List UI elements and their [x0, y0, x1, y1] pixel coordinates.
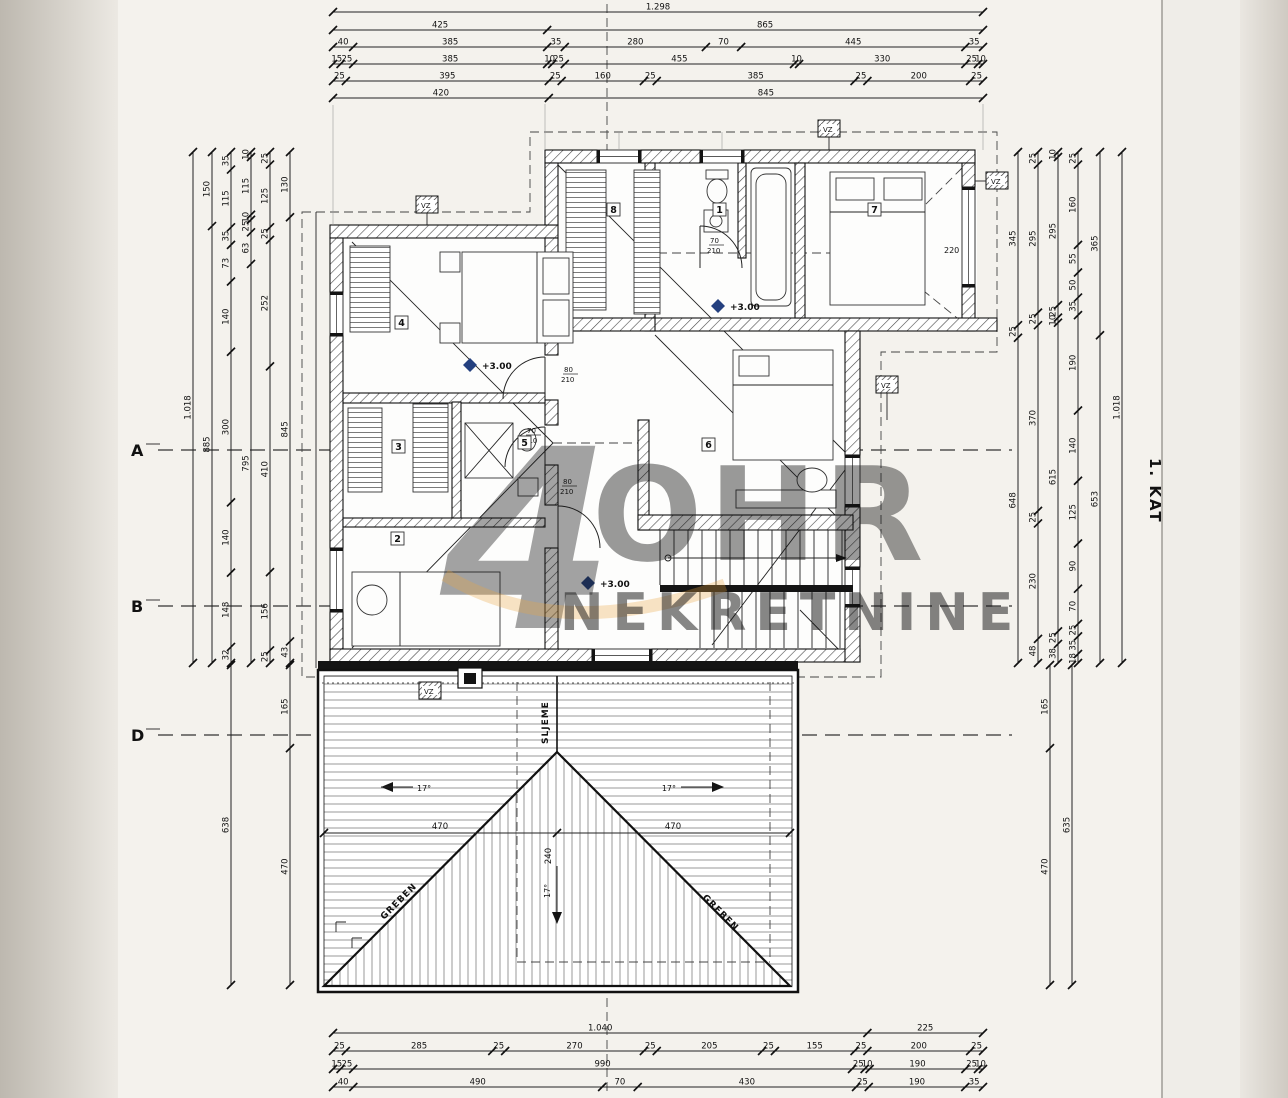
dim-label: 25: [242, 221, 252, 232]
roof-plan: VZ SLJEME 17° 17° 17° 470 470 240: [318, 661, 798, 992]
dim-label: 25: [1029, 313, 1039, 324]
svg-text:VZ: VZ: [823, 126, 833, 134]
room-number-3: 3: [392, 440, 405, 453]
dim-label: 90: [1069, 561, 1079, 572]
dim-label: 385: [442, 55, 458, 65]
svg-text:80: 80: [564, 366, 573, 374]
dim-label: 63: [242, 243, 252, 254]
dim-label: 410: [261, 461, 271, 477]
svg-text:70: 70: [710, 237, 719, 245]
dim-label: 845: [758, 89, 774, 99]
svg-text:470: 470: [432, 822, 448, 832]
dim-label: 370: [1029, 410, 1039, 426]
dim-label: 35: [222, 155, 232, 166]
dim-label: 165: [1041, 698, 1051, 714]
dim-label: 200: [911, 1042, 927, 1052]
dim-label: 10: [975, 1060, 986, 1070]
dim-label: 70: [615, 1078, 626, 1088]
dim-label: 25: [645, 72, 656, 82]
dim-label: 150: [203, 181, 213, 197]
dim-label: 795: [242, 455, 252, 471]
dim-label: 10: [1049, 315, 1059, 326]
blueprint-page: A B D: [0, 0, 1288, 1098]
svg-text:210: 210: [707, 247, 720, 255]
dim-label: 1.018: [184, 395, 194, 419]
room-number-8: 8: [607, 203, 620, 216]
pillow: [836, 178, 874, 200]
dim-label: 190: [1069, 355, 1079, 371]
toilet-tank: [706, 170, 728, 179]
dim-label: 1.298: [646, 3, 670, 13]
dim-label: 35: [222, 231, 232, 242]
pillow: [884, 178, 922, 200]
dim-label: 295: [1029, 230, 1039, 246]
dim-label: 190: [909, 1078, 925, 1088]
room-number-7: 7: [868, 203, 881, 216]
dim-label: 40: [338, 1078, 349, 1088]
dim-label: 420: [433, 89, 449, 99]
dim-label: 40: [338, 38, 349, 48]
dim-label: 160: [595, 72, 611, 82]
dim-label: 50: [1069, 280, 1079, 291]
dim-label: 25: [493, 1042, 504, 1052]
dim-label: 865: [757, 21, 773, 31]
dim-label: 25: [856, 72, 867, 82]
svg-text:2: 2: [394, 534, 401, 545]
dim-label: 73: [222, 258, 232, 269]
dim-label: 280: [627, 38, 643, 48]
svg-text:17°: 17°: [417, 784, 431, 793]
dim-label: 300: [222, 419, 232, 435]
dim-label: 430: [739, 1078, 755, 1088]
dim-label: 25: [1029, 153, 1039, 164]
dim-label: 38: [1049, 648, 1059, 659]
svg-text:VZ: VZ: [881, 382, 891, 390]
dim-label: 615: [1049, 469, 1059, 485]
dim-label: 653: [1091, 491, 1101, 507]
dim-label: 638: [222, 817, 232, 833]
dim-label: 140: [222, 529, 232, 545]
dim-label: 115: [242, 178, 252, 194]
svg-text:4: 4: [398, 318, 405, 329]
dim-label: 885: [203, 436, 213, 452]
dim-label: 190: [909, 1060, 925, 1070]
scan-edge-right: [1240, 0, 1288, 1098]
dim-label: 385: [748, 72, 764, 82]
svg-text:+3.00: +3.00: [730, 303, 760, 313]
dim-label: 25: [261, 153, 271, 164]
dim-label: 230: [1029, 573, 1039, 589]
dim-label: 35: [1069, 640, 1079, 651]
dim-label: 1.018: [1113, 395, 1123, 419]
svg-text:470: 470: [665, 822, 681, 832]
dim-label: 70: [1069, 601, 1079, 612]
dim-label: 160: [1069, 197, 1079, 213]
dim-label: 25: [334, 72, 345, 82]
axis-label-b: B: [131, 597, 143, 616]
dim-label: 490: [470, 1078, 486, 1088]
svg-text:+3.00: +3.00: [482, 362, 512, 372]
wardrobe: [634, 170, 660, 314]
watermark-letters: OHR: [592, 439, 929, 591]
dim-label: 165: [281, 698, 291, 714]
vent-vz: VZ: [419, 682, 441, 699]
pillow: [543, 300, 569, 336]
dim-label: 25: [1069, 625, 1079, 636]
svg-text:VZ: VZ: [421, 202, 431, 210]
dim-label: 270: [566, 1042, 582, 1052]
dim-label: 425: [432, 21, 448, 31]
dim-label: 252: [261, 295, 271, 311]
dim-label: 18: [1069, 653, 1079, 664]
dim-label: 225: [917, 1024, 933, 1034]
dim-label: 125: [1069, 504, 1079, 520]
dim-label: 25: [553, 55, 564, 65]
dim-label: 365: [1091, 235, 1101, 251]
svg-text:VZ: VZ: [991, 178, 1001, 186]
dim-label: 205: [701, 1042, 717, 1052]
watermark-subtitle: NEKRETNINE: [560, 583, 1022, 643]
dim-label: 115: [222, 190, 232, 206]
svg-text:7: 7: [871, 205, 878, 216]
dim-label: 25: [971, 72, 982, 82]
dim-label: 25: [971, 1042, 982, 1052]
dim-label: 10: [242, 149, 252, 160]
dim-label: 140: [1069, 438, 1079, 454]
dim-label: 32: [222, 650, 232, 661]
dim-label: 25: [341, 55, 352, 65]
pillow: [357, 585, 387, 615]
dim-label: 845: [281, 421, 291, 437]
dim-label: 1.040: [588, 1024, 612, 1034]
wardrobe: [348, 408, 382, 492]
dim-label: 25: [1049, 632, 1059, 643]
svg-text:17°: 17°: [543, 884, 552, 898]
dim-label: 25: [341, 1060, 352, 1070]
dim-label: 345: [1009, 230, 1019, 246]
dim-label: 10: [862, 1060, 873, 1070]
floor-title: 1. KAT: [1146, 458, 1164, 524]
dim-label: 148: [222, 602, 232, 618]
room-number-4: 4: [395, 316, 408, 329]
svg-text:240: 240: [544, 848, 554, 864]
dim-label: 10: [791, 55, 802, 65]
dim-label: 25: [334, 1042, 345, 1052]
dim-label: 140: [222, 309, 232, 325]
dim-label: 43: [281, 647, 291, 658]
dim-label: 35: [969, 1078, 980, 1088]
dim-label: 285: [411, 1042, 427, 1052]
dim-label: 395: [439, 72, 455, 82]
ridge-label: SLJEME: [541, 701, 551, 744]
svg-text:17°: 17°: [662, 784, 676, 793]
dim-label: 155: [807, 1042, 823, 1052]
dim-label: 25: [261, 651, 271, 662]
svg-text:210: 210: [561, 376, 574, 384]
dim-label: 48: [1029, 646, 1039, 657]
dim-label: 455: [671, 55, 687, 65]
blueprint-canvas: A B D: [0, 0, 1288, 1098]
dim-label: 55: [1069, 253, 1079, 264]
dim-label: 35: [969, 38, 980, 48]
dim-label: 648: [1009, 492, 1019, 508]
axis-label-a: A: [131, 441, 144, 460]
dim-label: 130: [281, 177, 291, 193]
pillow: [543, 258, 569, 294]
scan-edge-left: [0, 0, 118, 1098]
dim-label: 25: [1069, 153, 1079, 164]
dim-label: 156: [261, 603, 271, 619]
wardrobe: [350, 246, 390, 332]
dim-label: 25: [261, 228, 271, 239]
room-number-1: 1: [713, 203, 726, 216]
dim-label: 35: [551, 38, 562, 48]
toilet: [707, 179, 727, 203]
dim-label: 200: [911, 72, 927, 82]
window-width-label: 220: [944, 246, 959, 255]
dim-label: 10: [1049, 149, 1059, 160]
svg-text:1: 1: [716, 205, 723, 216]
dim-label: 990: [594, 1060, 610, 1070]
dim-label: 35: [1069, 301, 1079, 312]
dim-label: 470: [281, 858, 291, 874]
dim-label: 25: [763, 1042, 774, 1052]
room-number-2: 2: [391, 532, 404, 545]
dim-label: 10: [975, 55, 986, 65]
dim-label: 635: [1063, 817, 1073, 833]
nightstand: [440, 252, 460, 272]
dim-label: 330: [874, 55, 890, 65]
svg-text:3: 3: [395, 442, 402, 453]
dim-label: 25: [1009, 326, 1019, 337]
nightstand: [440, 323, 460, 343]
dim-label: 25: [645, 1042, 656, 1052]
sink-bowl: [710, 215, 722, 227]
pillow: [739, 356, 769, 376]
dim-label: 70: [718, 38, 729, 48]
dim-label: 445: [845, 38, 861, 48]
dim-label: 385: [442, 38, 458, 48]
axis-label-d: D: [131, 726, 144, 745]
watermark-numeral: 4: [439, 396, 614, 687]
dim-label: 470: [1041, 858, 1051, 874]
dim-label: 25: [856, 1042, 867, 1052]
dim-label: 25: [550, 72, 561, 82]
dim-label: 295: [1049, 223, 1059, 239]
dim-label: 125: [261, 188, 271, 204]
svg-text:8: 8: [610, 205, 617, 216]
dim-label: 25: [857, 1078, 868, 1088]
svg-text:VZ: VZ: [424, 688, 434, 696]
dim-label: 25: [1029, 512, 1039, 523]
